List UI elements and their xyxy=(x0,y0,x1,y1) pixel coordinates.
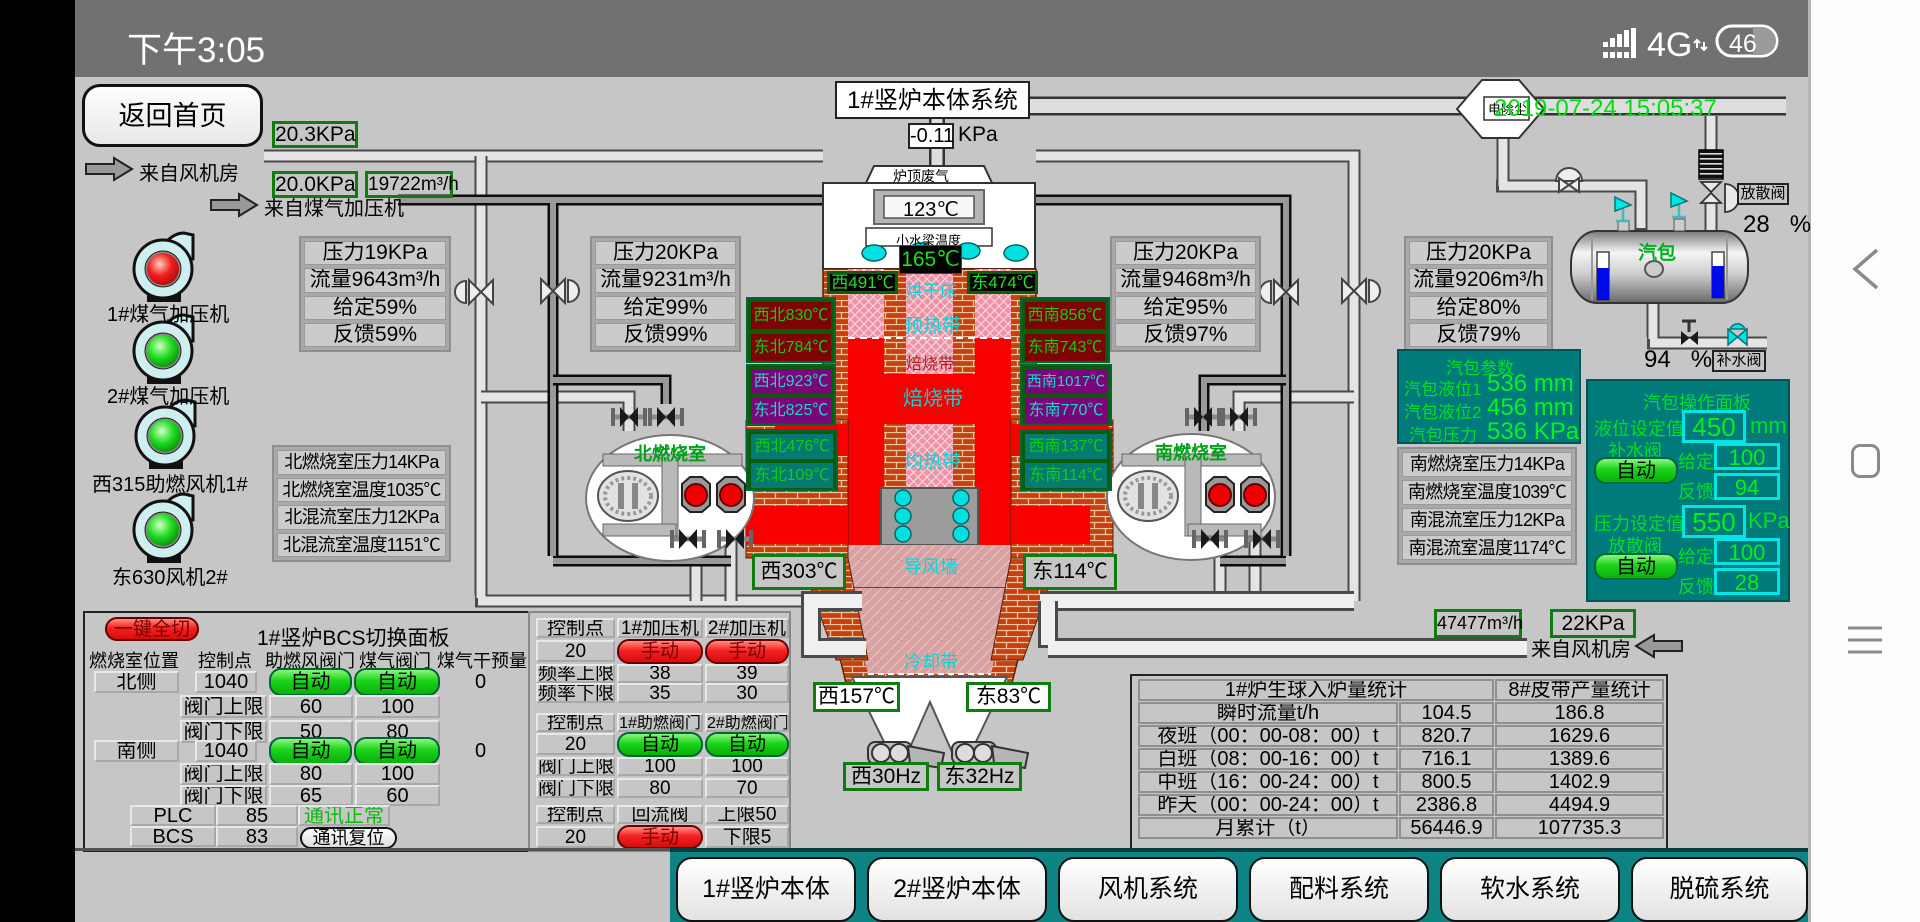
svg-text:4G: 4G xyxy=(1647,26,1692,62)
svg-text:46: 46 xyxy=(1729,30,1757,58)
